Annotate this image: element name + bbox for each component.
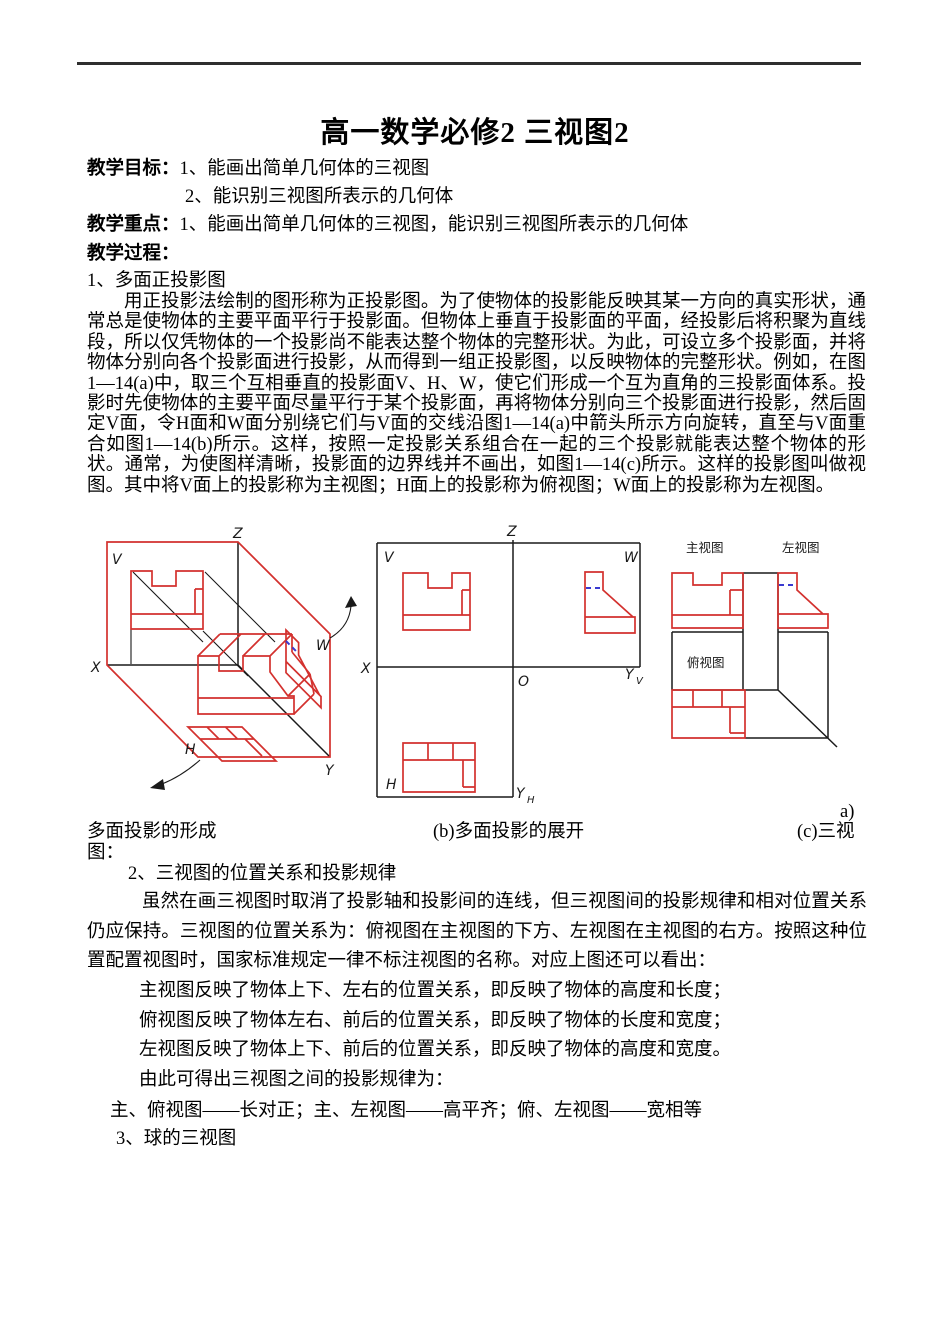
figure-c-top-view [672,690,745,738]
view-rules-list: 主视图反映了物体上下、左右的位置关系，即反映了物体的高度和长度； 俯视图反映了物… [139,977,731,1095]
figure-b-unfolded-planes: Z V W X O Y V H Y H [360,520,660,805]
figure-a-arrowhead-right [345,596,357,608]
figure-a-label-h: H [185,742,196,758]
caption-figure-a: 多面投影的形成 [87,822,217,843]
paragraph-projection-intro: 用正投影法绘制的图形称为正投影图。为了使物体的投影能反映其某一方向的真实形状，通… [87,292,866,496]
figure-b-label-o: O [518,674,529,690]
figure-a-fold-lines [107,542,330,757]
rule-conclusion-lead: 由此可得出三视图之间的投影规律为： [139,1066,731,1096]
caption-figure-b: (b)多面投影的展开 [433,822,584,843]
header-rule [77,62,861,65]
caption-wrap: 图： [87,843,124,864]
figure-a-arrowhead-bottom [150,779,165,790]
figure-a-plane-box [107,542,330,757]
figure-b-label-v: V [384,550,395,566]
projection-law-line: 主、俯视图——长对正；主、左视图——高平齐；俯、左视图——宽相等 [110,1101,702,1122]
figure-b-label-y-right-sub: V [636,676,644,687]
figure-c-label-side-view: 左视图 [782,540,820,555]
section-3-heading: 3、球的三视图 [116,1129,236,1150]
figure-a-label-y: Y [325,763,335,779]
figure-a-top-view-projection [188,727,276,761]
page-title: 高一数学必修2 三视图2 [0,109,950,151]
figure-a-rotation-arrow-bottom [162,760,200,784]
focus-line: 教学重点：1、能画出简单几何体的三视图，能识别三视图所表示的几何体 [87,215,688,236]
caption-figure-c: (c)三视 [797,822,855,843]
figure-b-top-view [403,743,475,792]
focus-text: 1、能画出简单几何体的三视图，能识别三视图所表示的几何体 [180,215,689,235]
figure-a-label-x: X [90,660,101,676]
rule-front-view: 主视图反映了物体上下、左右的位置关系，即反映了物体的高度和长度； [139,977,731,1007]
figure-b-label-z: Z [506,524,517,540]
document-page: 高一数学必修2 三视图2 教学目标：1、能画出简单几何体的三视图 2、能识别三视… [0,0,950,1342]
objectives-line: 教学目标：1、能画出简单几何体的三视图 [87,159,429,180]
figure-b-label-w: W [624,550,639,566]
objectives-label: 教学目标： [87,159,180,179]
figure-a-label-v: V [112,552,123,568]
rule-top-view: 俯视图反映了物体左右、前后的位置关系，即反映了物体的长度和宽度； [139,1007,731,1037]
figure-c-side-view [778,573,828,628]
focus-label: 教学重点： [87,215,180,235]
process-label: 教学过程： [87,244,180,265]
figure-b-label-y-bottom-sub: H [527,795,535,806]
figure-c-three-views: 主视图 左视图 俯视图 [663,533,863,778]
figure-c-label-front-view: 主视图 [686,540,724,555]
figure-a-rotation-arrow-right [330,606,351,638]
caption-overflow-a: a) [840,802,854,823]
figure-c-front-view [672,573,743,628]
paragraph-view-positions: 虽然在画三视图时取消了投影轴和投影间的连线，但三视图间的投影规律和相对位置关系仍… [87,888,867,977]
figure-a-front-view-projection [131,571,203,629]
objective-2: 2、能识别三视图所表示的几何体 [185,187,453,208]
figure-a-label-w: W [316,638,331,654]
objective-1: 1、能画出简单几何体的三视图 [180,159,430,179]
rule-side-view: 左视图反映了物体上下、前后的位置关系，即反映了物体的高度和宽度。 [139,1036,731,1066]
figure-b-label-x: X [360,661,371,677]
figure-a-object [198,634,314,714]
figure-b-label-h: H [386,777,397,793]
figure-b-front-view [403,573,470,630]
figure-c-label-top-view: 俯视图 [687,655,725,670]
figure-b-side-view [585,572,635,633]
figure-a-projection-planes: Z V W X Y H [90,524,365,809]
figure-a-label-z: Z [232,526,243,542]
figure-b-label-y-bottom: Y [516,786,526,802]
section-1-heading: 1、多面正投影图 [87,271,226,292]
figure-b-plane-borders [377,540,640,797]
figure-b-label-y-right: Y [625,667,635,683]
section-2-heading: 2、三视图的位置关系和投影规律 [128,864,396,885]
